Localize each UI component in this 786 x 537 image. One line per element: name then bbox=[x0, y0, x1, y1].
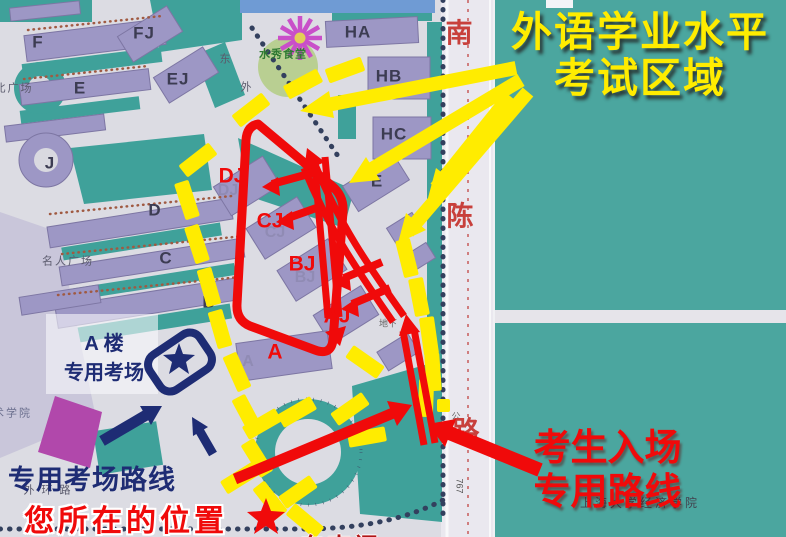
exam-area-title-line1: 外语学业水平 bbox=[497, 10, 783, 56]
red-entry-route bbox=[262, 148, 435, 445]
yellow-title-arrows bbox=[300, 68, 528, 243]
campus-exam-map: FFJEEJJDCBHAHBHCE DJCJBJA 北广场名人广场水秀食堂美术学… bbox=[0, 0, 786, 537]
exam-area-title-line2: 考试区域 bbox=[497, 56, 783, 102]
gate-label: 东南门 bbox=[300, 527, 381, 537]
entry-route-label-line2: 专用路线 bbox=[500, 470, 715, 514]
a-building-callout-line2: 专用考场 bbox=[44, 359, 164, 388]
navy-route-arrows bbox=[102, 406, 213, 454]
yellow-dashed-boundary bbox=[174, 56, 450, 537]
exam-area-title: 外语学业水平 考试区域 bbox=[497, 10, 783, 102]
a-building-callout-line1: A 楼 bbox=[44, 330, 164, 359]
a-building-callout-text: A 楼 专用考场 bbox=[44, 330, 164, 388]
entry-route-label-line1: 考生入场 bbox=[500, 426, 715, 470]
current-location-label: 您所在的位置 bbox=[24, 496, 228, 537]
entry-route-label: 考生入场 专用路线 bbox=[500, 426, 715, 513]
special-route-label: 专用考场路线 bbox=[8, 458, 176, 497]
